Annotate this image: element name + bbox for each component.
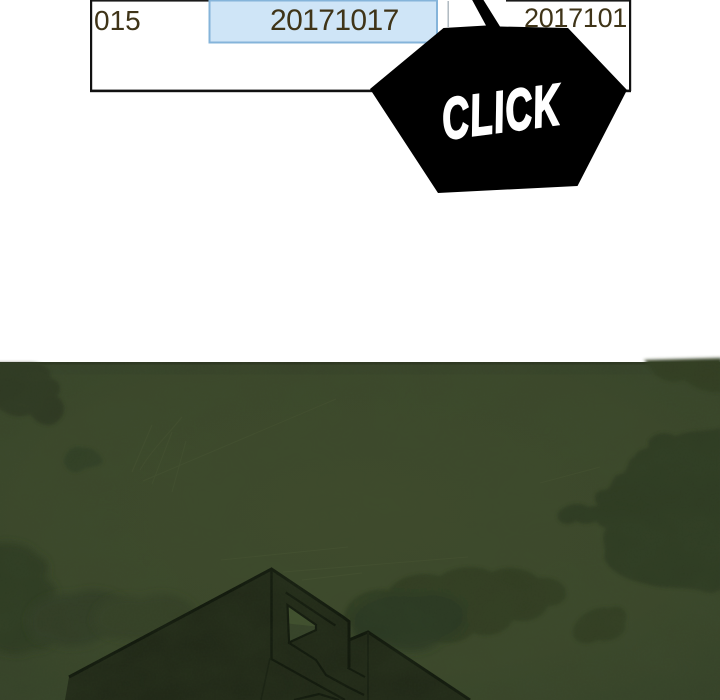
svg-text:015: 015 <box>94 5 141 36</box>
svg-text:20171017: 20171017 <box>270 4 399 37</box>
